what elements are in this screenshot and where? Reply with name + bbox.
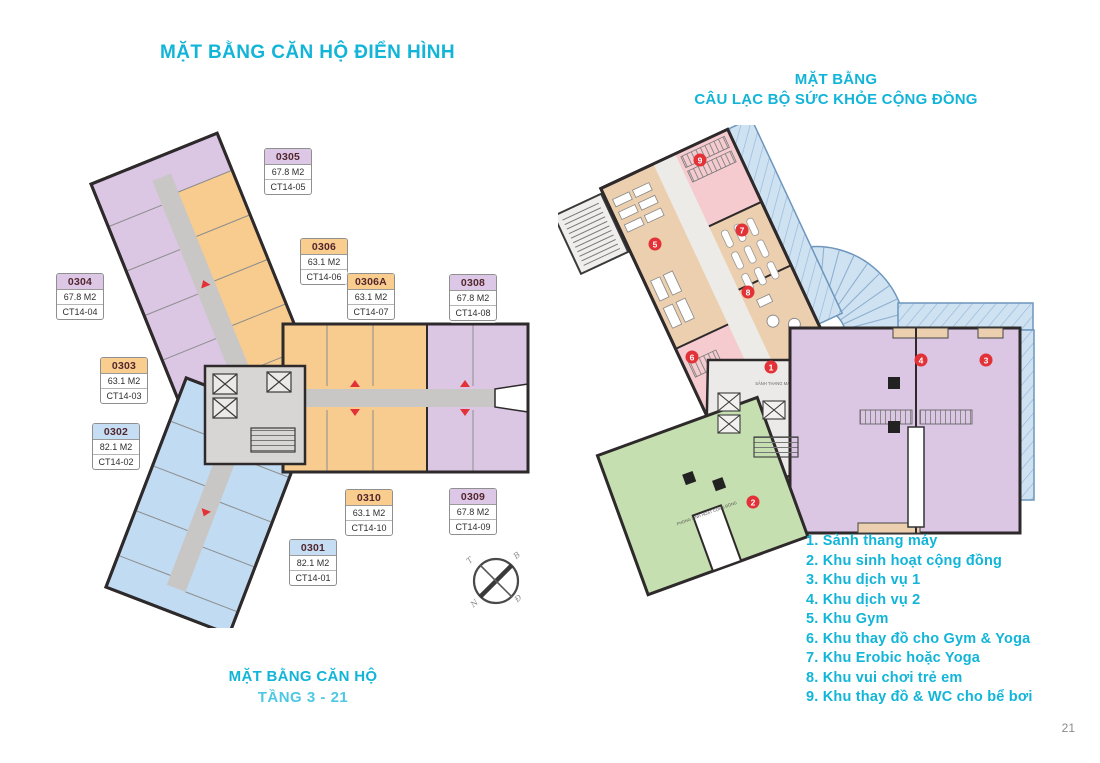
page-number: 21	[1062, 721, 1075, 735]
left-plan-caption: MẶT BẰNG CĂN HỘ TẦNG 3 - 21	[193, 668, 413, 706]
plan-marker-7: 7	[736, 224, 749, 237]
plan-marker-3: 3	[980, 354, 993, 367]
legend-item-3: 3. Khu dịch vụ 1	[806, 571, 1033, 591]
unit-label-0308: 030867.8 M2CT14-08	[449, 274, 497, 321]
unit-code: CT14-09	[450, 520, 496, 534]
unit-code: CT14-02	[93, 455, 139, 469]
legend-item-9: 9. Khu thay đồ & WC cho bể bơi	[806, 688, 1033, 708]
unit-label-0306: 030663.1 M2CT14-06	[300, 238, 348, 285]
caption-title: MẶT BẰNG CĂN HỘ	[193, 668, 413, 685]
unit-code: CT14-05	[265, 180, 311, 194]
unit-area: 82.1 M2	[290, 556, 336, 571]
unit-code: CT14-03	[101, 389, 147, 403]
unit-number: 0308	[450, 275, 496, 291]
unit-area: 82.1 M2	[93, 440, 139, 455]
unit-number: 0302	[93, 424, 139, 440]
unit-code: CT14-10	[346, 521, 392, 535]
unit-label-0304: 030467.8 M2CT14-04	[56, 273, 104, 320]
page-title: MẶT BẰNG CĂN HỘ ĐIỂN HÌNH	[160, 42, 455, 64]
unit-area: 67.8 M2	[450, 505, 496, 520]
unit-number: 0309	[450, 489, 496, 505]
plan-marker-2: 2	[747, 496, 760, 509]
unit-label-0306A: 0306A63.1 M2CT14-07	[347, 273, 395, 320]
unit-label-0303: 030363.1 M2CT14-03	[100, 357, 148, 404]
unit-label-0302: 030282.1 M2CT14-02	[92, 423, 140, 470]
unit-label-0309: 030967.8 M2CT14-09	[449, 488, 497, 535]
right-plan-title-line2: CÂU LẠC BỘ SỨC KHỎE CỘNG ĐỒNG	[636, 90, 1036, 110]
unit-code: CT14-04	[57, 305, 103, 319]
plan-marker-4: 4	[915, 354, 928, 367]
unit-area: 67.8 M2	[265, 165, 311, 180]
unit-code: CT14-01	[290, 571, 336, 585]
right-plan-title-line1: MẶT BẰNG	[636, 70, 1036, 90]
unit-code: CT14-06	[301, 270, 347, 284]
elevator-core	[205, 366, 305, 464]
unit-area: 63.1 M2	[301, 255, 347, 270]
unit-area: 67.8 M2	[57, 290, 103, 305]
unit-number: 0306A	[348, 274, 394, 290]
plan-marker-1: 1	[765, 361, 778, 374]
unit-label-0301: 030182.1 M2CT14-01	[289, 539, 337, 586]
right-plan-title: MẶT BẰNG CÂU LẠC BỘ SỨC KHỎE CỘNG ĐỒNG	[636, 70, 1036, 110]
unit-number: 0310	[346, 490, 392, 506]
compass: TBNĐ	[466, 549, 528, 611]
unit-number: 0303	[101, 358, 147, 374]
unit-area: 63.1 M2	[101, 374, 147, 389]
plan-marker-6: 6	[686, 351, 699, 364]
unit-area: 67.8 M2	[450, 291, 496, 306]
lobby-label: SẢNH THANG MÁY	[755, 381, 793, 386]
legend: 1. Sảnh thang máy2. Khu sinh hoạt cộng đ…	[806, 532, 1033, 708]
unit-label-0305: 030567.8 M2CT14-05	[264, 148, 312, 195]
legend-item-5: 5. Khu Gym	[806, 610, 1033, 630]
brochure-page: MẶT BẰNG CĂN HỘ ĐIỂN HÌNH MẶT BẰNG CÂU L…	[0, 0, 1100, 763]
unit-number: 0305	[265, 149, 311, 165]
legend-item-7: 7. Khu Erobic hoặc Yoga	[806, 649, 1033, 669]
unit-code: CT14-08	[450, 306, 496, 320]
unit-area: 63.1 M2	[348, 290, 394, 305]
unit-number: 0306	[301, 239, 347, 255]
unit-area: 63.1 M2	[346, 506, 392, 521]
unit-number: 0304	[57, 274, 103, 290]
caption-subtitle: TẦNG 3 - 21	[193, 689, 413, 706]
unit-code: CT14-07	[348, 305, 394, 319]
unit-label-0310: 031063.1 M2CT14-10	[345, 489, 393, 536]
plan-marker-8: 8	[742, 286, 755, 299]
legend-item-6: 6. Khu thay đồ cho Gym & Yoga	[806, 630, 1033, 650]
legend-item-1: 1. Sảnh thang máy	[806, 532, 1033, 552]
plan-marker-5: 5	[649, 238, 662, 251]
plan-marker-9: 9	[694, 154, 707, 167]
unit-number: 0301	[290, 540, 336, 556]
legend-item-8: 8. Khu vui chơi trẻ em	[806, 669, 1033, 689]
legend-item-2: 2. Khu sinh hoạt cộng đồng	[806, 552, 1033, 572]
legend-item-4: 4. Khu dịch vụ 2	[806, 591, 1033, 611]
